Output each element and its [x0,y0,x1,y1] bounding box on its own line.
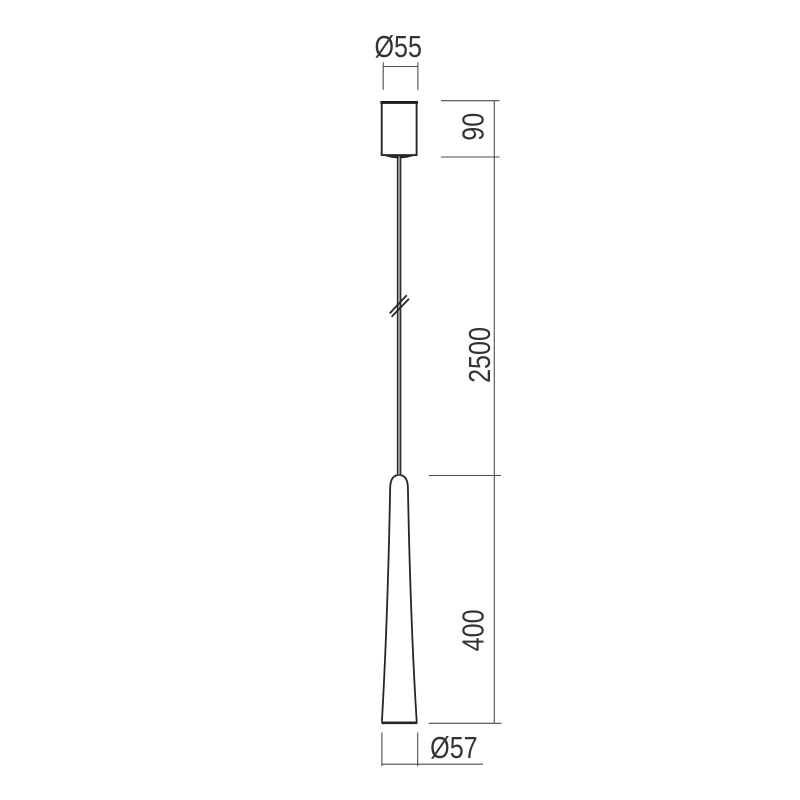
svg-text:400: 400 [455,609,490,651]
svg-text:Ø55: Ø55 [374,28,421,63]
svg-text:Ø57: Ø57 [430,729,477,764]
svg-text:90: 90 [455,113,490,141]
svg-text:2500: 2500 [461,327,496,383]
